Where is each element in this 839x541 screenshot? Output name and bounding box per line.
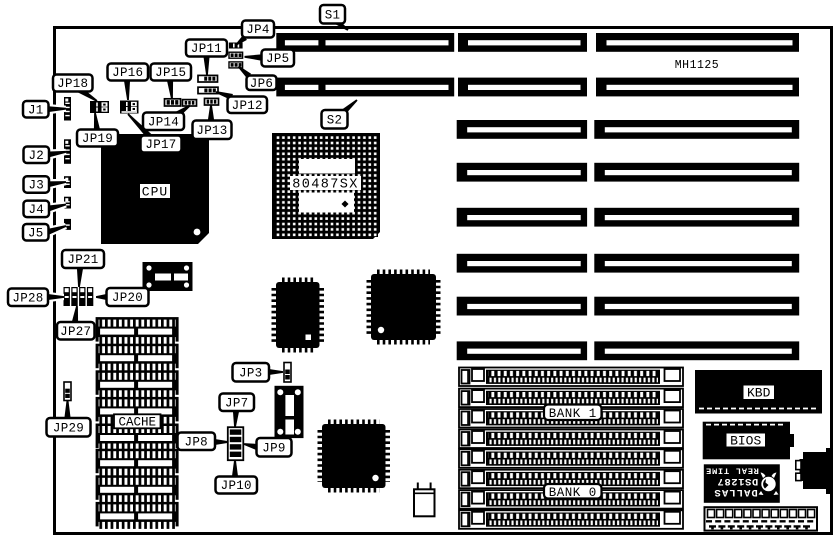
svg-text:CPU: CPU: [142, 185, 168, 200]
svg-text:JP15: JP15: [155, 66, 186, 80]
svg-text:BIOS: BIOS: [730, 433, 761, 448]
svg-text:JP27: JP27: [60, 325, 91, 339]
svg-text:BANK 0: BANK 0: [549, 486, 597, 500]
svg-text:JP28: JP28: [12, 291, 43, 305]
svg-text:J2: J2: [28, 149, 44, 163]
svg-text:MH1125: MH1125: [675, 59, 719, 72]
svg-text:80487SX: 80487SX: [292, 178, 359, 193]
svg-text:J4: J4: [28, 203, 44, 217]
svg-text:S1: S1: [325, 8, 341, 22]
svg-text:J5: J5: [28, 226, 44, 240]
svg-text:DS1287: DS1287: [717, 475, 758, 487]
svg-text:JP14: JP14: [148, 115, 179, 129]
svg-text:JP6: JP6: [250, 77, 273, 91]
svg-text:JP8: JP8: [185, 435, 208, 449]
svg-text:JP13: JP13: [196, 124, 227, 138]
svg-text:JP10: JP10: [221, 479, 252, 493]
svg-text:JP12: JP12: [232, 99, 263, 113]
svg-text:J3: J3: [28, 178, 44, 192]
svg-text:JP18: JP18: [57, 77, 88, 91]
svg-text:JP9: JP9: [262, 441, 285, 455]
svg-text:JP7: JP7: [225, 396, 248, 410]
svg-text:JP29: JP29: [53, 421, 84, 435]
svg-text:JP17: JP17: [145, 138, 176, 152]
svg-text:JP5: JP5: [266, 52, 289, 66]
svg-text:JP4: JP4: [246, 23, 269, 37]
svg-text:JP19: JP19: [82, 132, 113, 146]
svg-text:JP11: JP11: [191, 42, 222, 56]
svg-text:JP16: JP16: [112, 66, 143, 80]
svg-text:JP3: JP3: [239, 366, 262, 380]
svg-text:J1: J1: [28, 103, 44, 117]
svg-text:JP20: JP20: [112, 291, 143, 305]
svg-text:JP21: JP21: [67, 253, 98, 267]
svg-text:KBD: KBD: [747, 386, 771, 401]
svg-text:BANK 1: BANK 1: [549, 407, 597, 421]
svg-text:REAL TIME: REAL TIME: [705, 466, 759, 476]
svg-text:S2: S2: [327, 113, 343, 127]
svg-text:CACHE: CACHE: [118, 416, 156, 430]
